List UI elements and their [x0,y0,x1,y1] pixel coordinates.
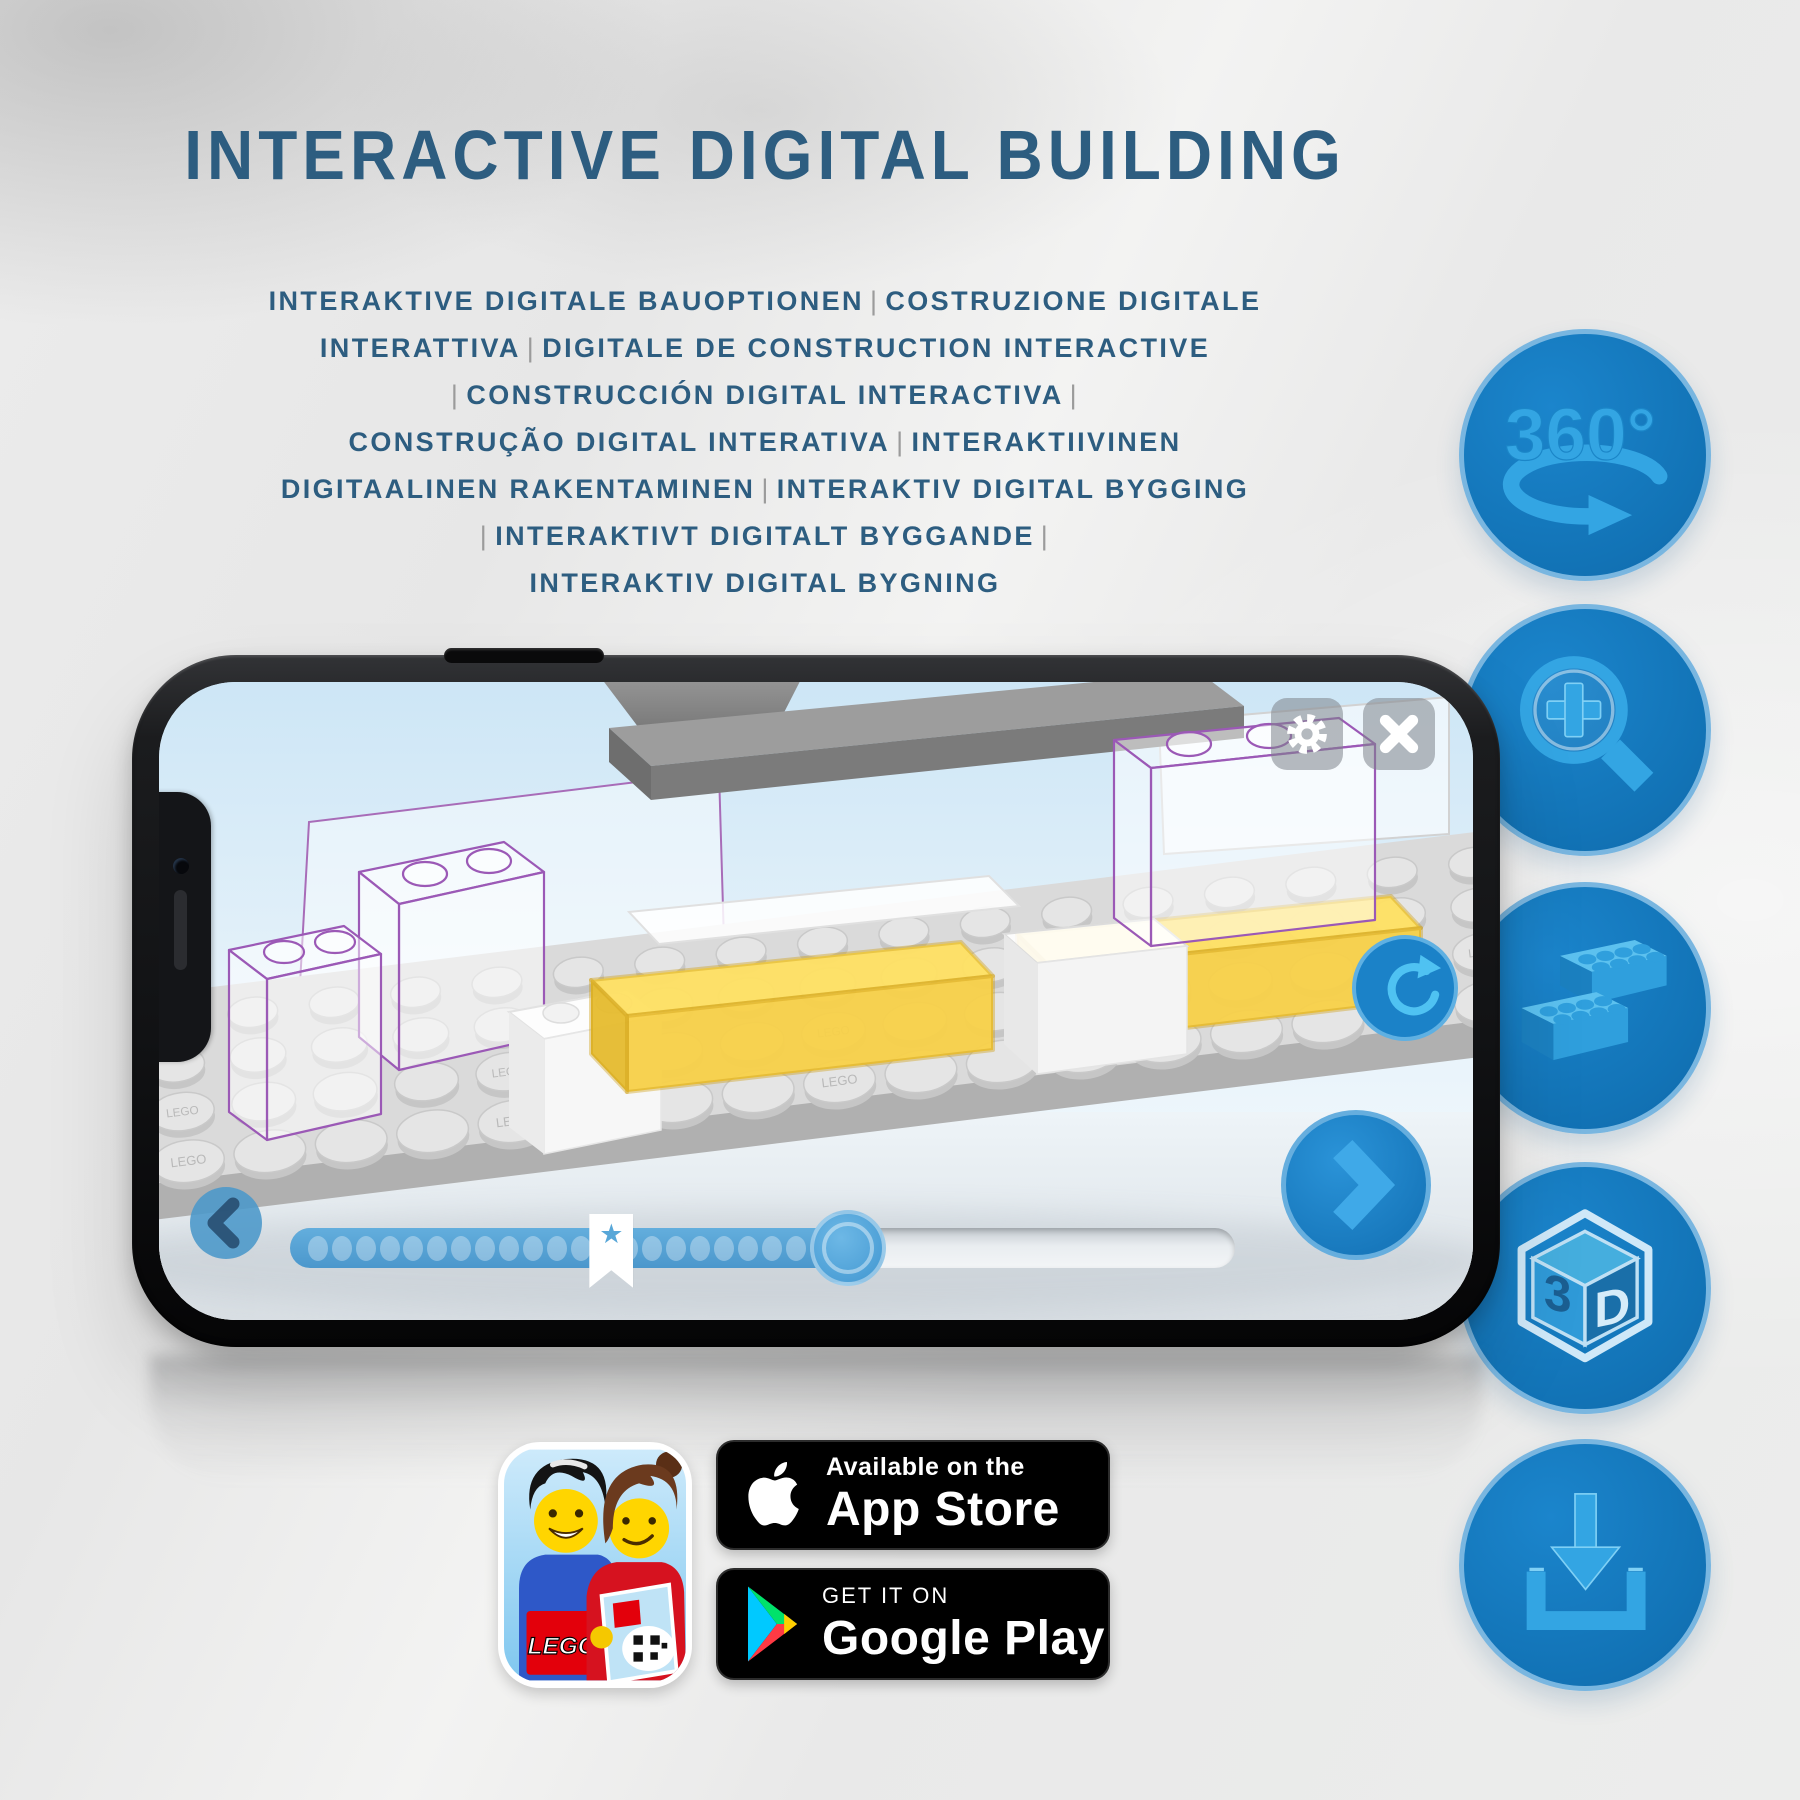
building-scene: LEGOLEGOLEGOLEGOLEGOLEGOLEGOLEGOLEGOLEGO [159,682,1473,1320]
feature-360-rotation: 360° [1459,329,1711,581]
app-store-tagline: Available on the [826,1453,1060,1481]
previous-step-button[interactable] [190,1187,262,1259]
progress-filled [290,1228,848,1268]
lego-app-artwork: LEGO [504,1448,686,1682]
next-step-button[interactable] [1281,1110,1431,1260]
google-play-badge[interactable]: GET IT ON Google Play [716,1568,1110,1680]
apple-icon [748,1461,804,1529]
progress-thumb[interactable] [810,1210,886,1286]
progress-dot [738,1236,758,1261]
progress-dot [475,1236,495,1261]
progress-dot [786,1236,806,1261]
close-icon [1372,707,1426,761]
subtitle-line: INTERAKTIV DIGITAL BYGNING [145,560,1385,607]
progress-dot [642,1236,662,1261]
speaker-icon [174,890,187,970]
rotate-icon [1366,949,1444,1027]
subtitle-line: CONSTRUÇÃO DIGITAL INTERATIVA|INTERAKTII… [145,419,1385,466]
zoom-in-icon [1485,630,1685,830]
lego-app-icon: LEGO [498,1442,692,1688]
google-play-tagline: GET IT ON [822,1582,1105,1610]
svg-text:D: D [1594,1275,1630,1339]
svg-text:LEGO: LEGO [528,1633,597,1660]
progress-dot [499,1236,519,1261]
3d-view-icon: 3 D [1483,1186,1687,1390]
phone: LEGOLEGOLEGOLEGOLEGOLEGOLEGOLEGOLEGOLEGO [132,655,1500,1347]
google-play-icon [748,1586,800,1662]
progress-dot [666,1236,686,1261]
app-store-name: App Store [826,1483,1060,1537]
subtitle-line: INTERATTIVA|DIGITALE DE CONSTRUCTION INT… [145,325,1385,372]
progress-dot [451,1236,471,1261]
progress-dot [523,1236,543,1261]
close-button[interactable] [1363,698,1435,770]
subtitle-line: |CONSTRUCCIÓN DIGITAL INTERACTIVA| [145,372,1385,419]
camera-icon [173,858,189,874]
progress-dot [690,1236,710,1261]
svg-text:3: 3 [1544,1262,1572,1324]
phone-screen: LEGOLEGOLEGOLEGOLEGOLEGOLEGOLEGOLEGOLEGO [159,682,1473,1320]
subtitle-line: INTERAKTIVE DIGITALE BAUOPTIONEN|COSTRUZ… [145,278,1385,325]
progress-dot [380,1236,400,1261]
progress-dot [714,1236,734,1261]
subtitle-line: |INTERAKTIVT DIGITALT BYGGANDE| [145,513,1385,560]
app-store-badge[interactable]: Available on the App Store [716,1440,1110,1550]
lego-brick-icon [1483,906,1687,1110]
progress-dot [427,1236,447,1261]
progress-dot [547,1236,567,1261]
progress-dot [308,1236,328,1261]
progress-dot [762,1236,782,1261]
360-rotation-icon: 360° [1479,349,1691,561]
google-play-name: Google Play [822,1612,1105,1666]
svg-text:360°: 360° [1505,395,1656,476]
settings-button[interactable] [1271,698,1343,770]
subtitle-line: DIGITAALINEN RAKENTAMINEN|INTERAKTIV DIG… [145,466,1385,513]
chevron-right-icon [1286,1110,1426,1260]
progress-dot [356,1236,376,1261]
phone-notch [159,792,211,1062]
chevron-left-icon [190,1187,262,1259]
build-progress-bar[interactable]: ★ [290,1228,1235,1268]
subtitle: INTERAKTIVE DIGITALE BAUOPTIONEN|COSTRUZ… [145,278,1385,607]
download-icon [1485,1465,1685,1665]
feature-download [1459,1439,1711,1691]
progress-dot [571,1236,591,1261]
page-title: INTERACTIVE DIGITAL BUILDING [45,115,1485,195]
marketing-page: INTERACTIVE DIGITAL BUILDING INTERAKTIVE… [0,0,1800,1800]
gear-icon [1280,707,1334,761]
rotate-view-button[interactable] [1352,935,1458,1041]
progress-dot [332,1236,352,1261]
phone-side-button [444,648,604,663]
progress-dot [403,1236,423,1261]
